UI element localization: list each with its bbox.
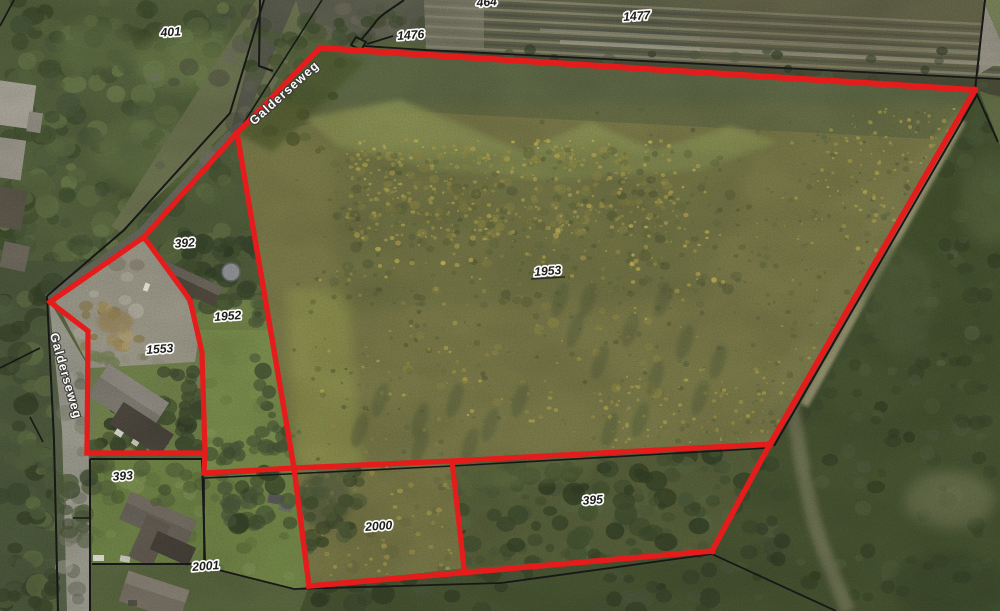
svg-text:395: 395 [582,492,603,507]
svg-text:1953: 1953 [534,263,562,279]
svg-text:1553: 1553 [146,341,174,357]
svg-text:392: 392 [174,235,195,250]
svg-text:2000: 2000 [364,518,393,534]
svg-text:2001: 2001 [191,558,220,574]
svg-text:1952: 1952 [214,308,242,324]
svg-text:393: 393 [112,468,133,483]
svg-text:1477: 1477 [623,8,652,24]
svg-text:1476: 1476 [397,27,425,43]
svg-text:464: 464 [475,0,497,10]
svg-text:401: 401 [159,24,181,39]
